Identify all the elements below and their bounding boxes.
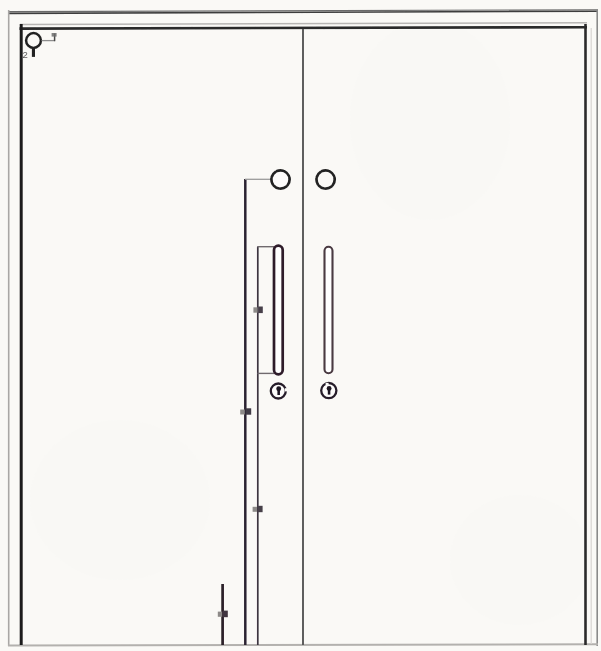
svg-text:2: 2: [23, 49, 28, 60]
